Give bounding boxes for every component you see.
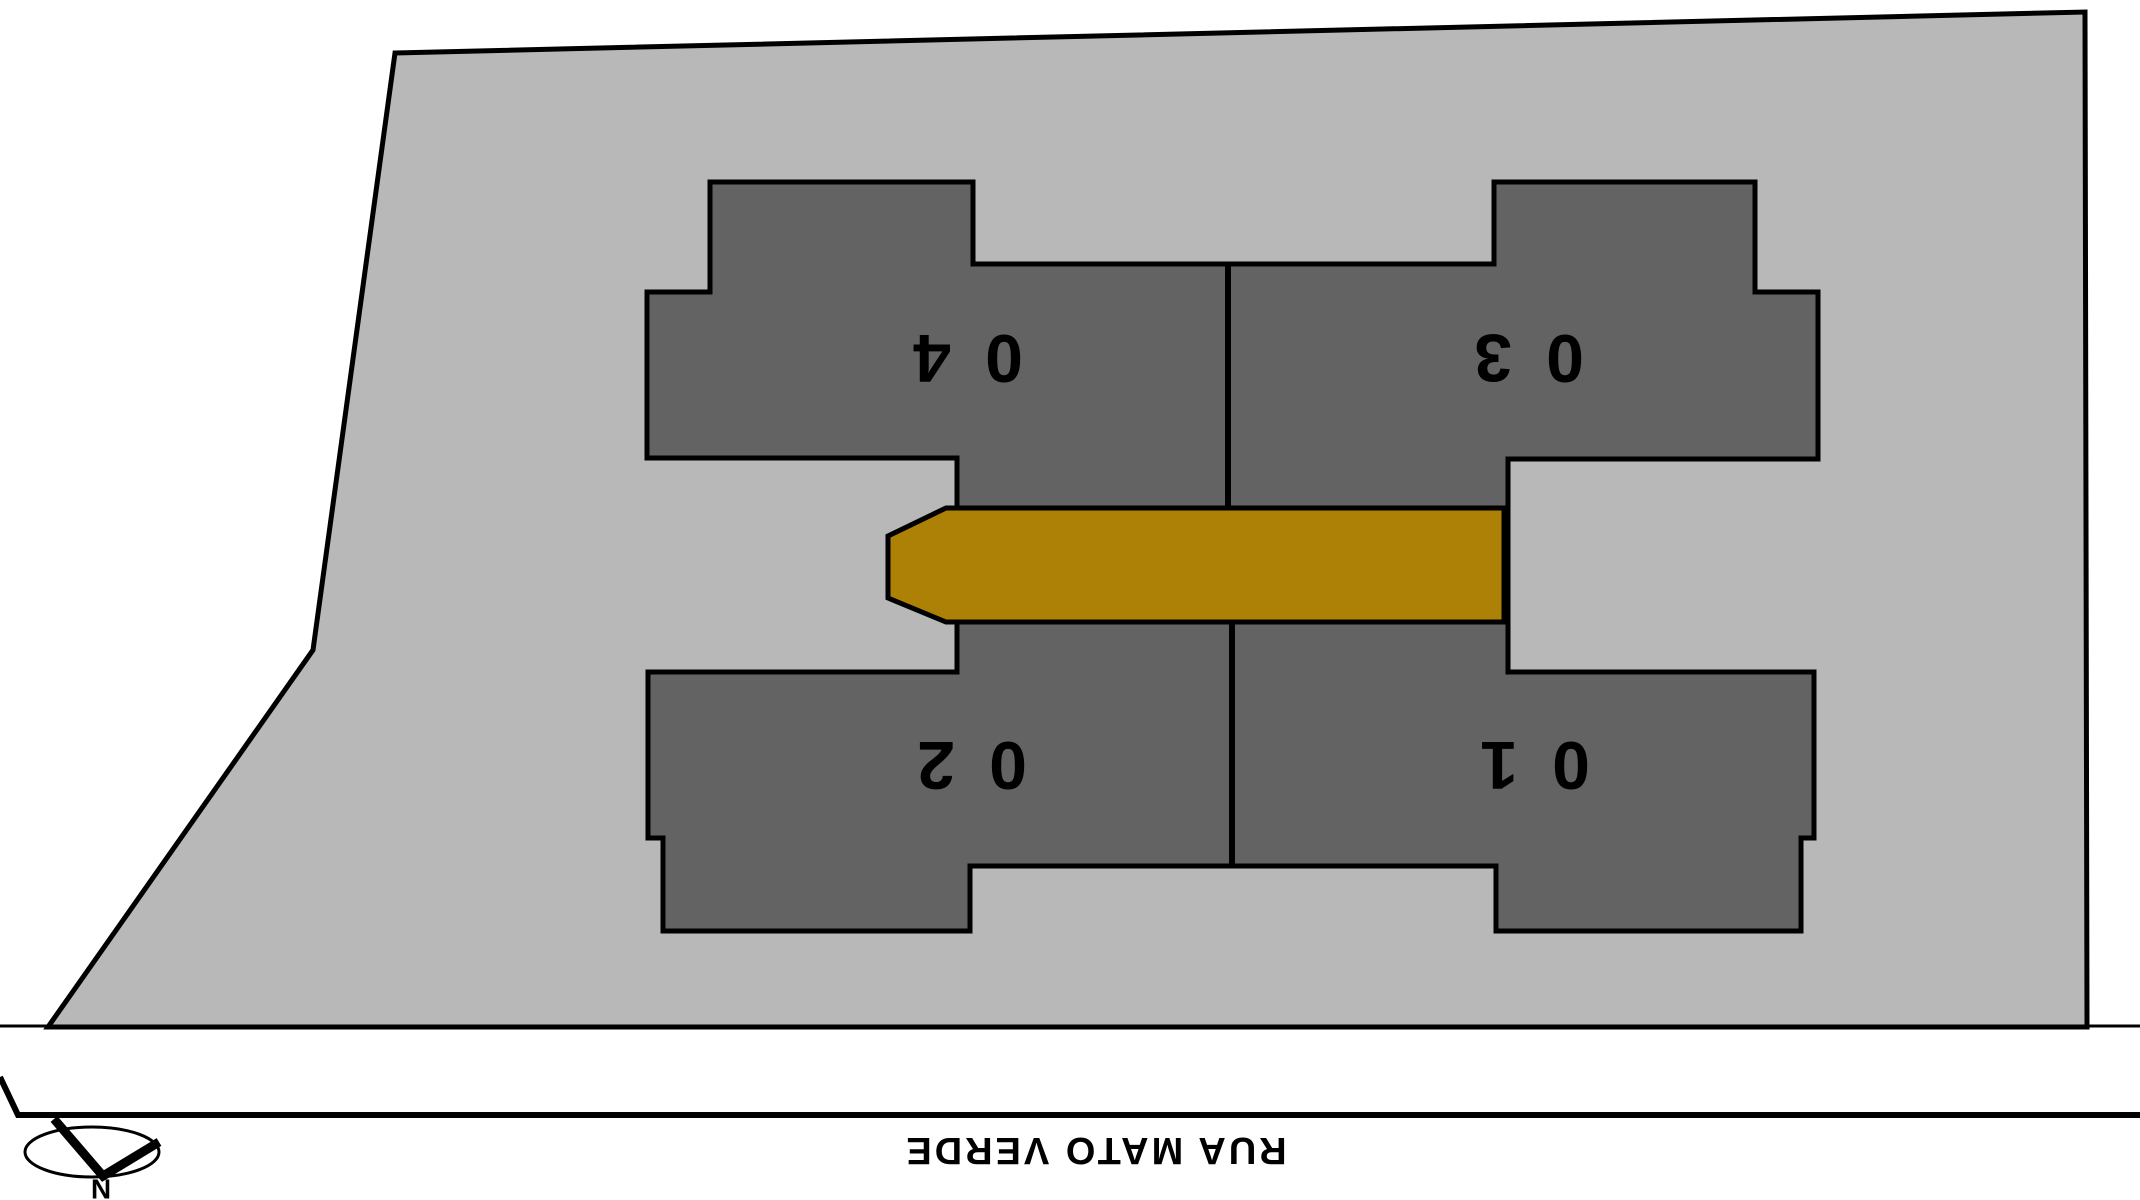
unit-01-label: 01 — [1446, 727, 1590, 803]
street-name-label: RUA MATO VERDE — [903, 1129, 1286, 1171]
corridor-highlight — [888, 508, 1504, 622]
unit-02-label: 02 — [883, 727, 1027, 803]
compass-north-label: N — [91, 1174, 111, 1200]
unit-03-label: 03 — [1440, 320, 1584, 396]
unit-04-label: 04 — [879, 320, 1023, 396]
site-plan: 01 02 03 04 RUA MATO VERDE N — [0, 0, 2140, 1200]
site-plan-canvas: 01 02 03 04 RUA MATO VERDE N — [0, 0, 2140, 1200]
